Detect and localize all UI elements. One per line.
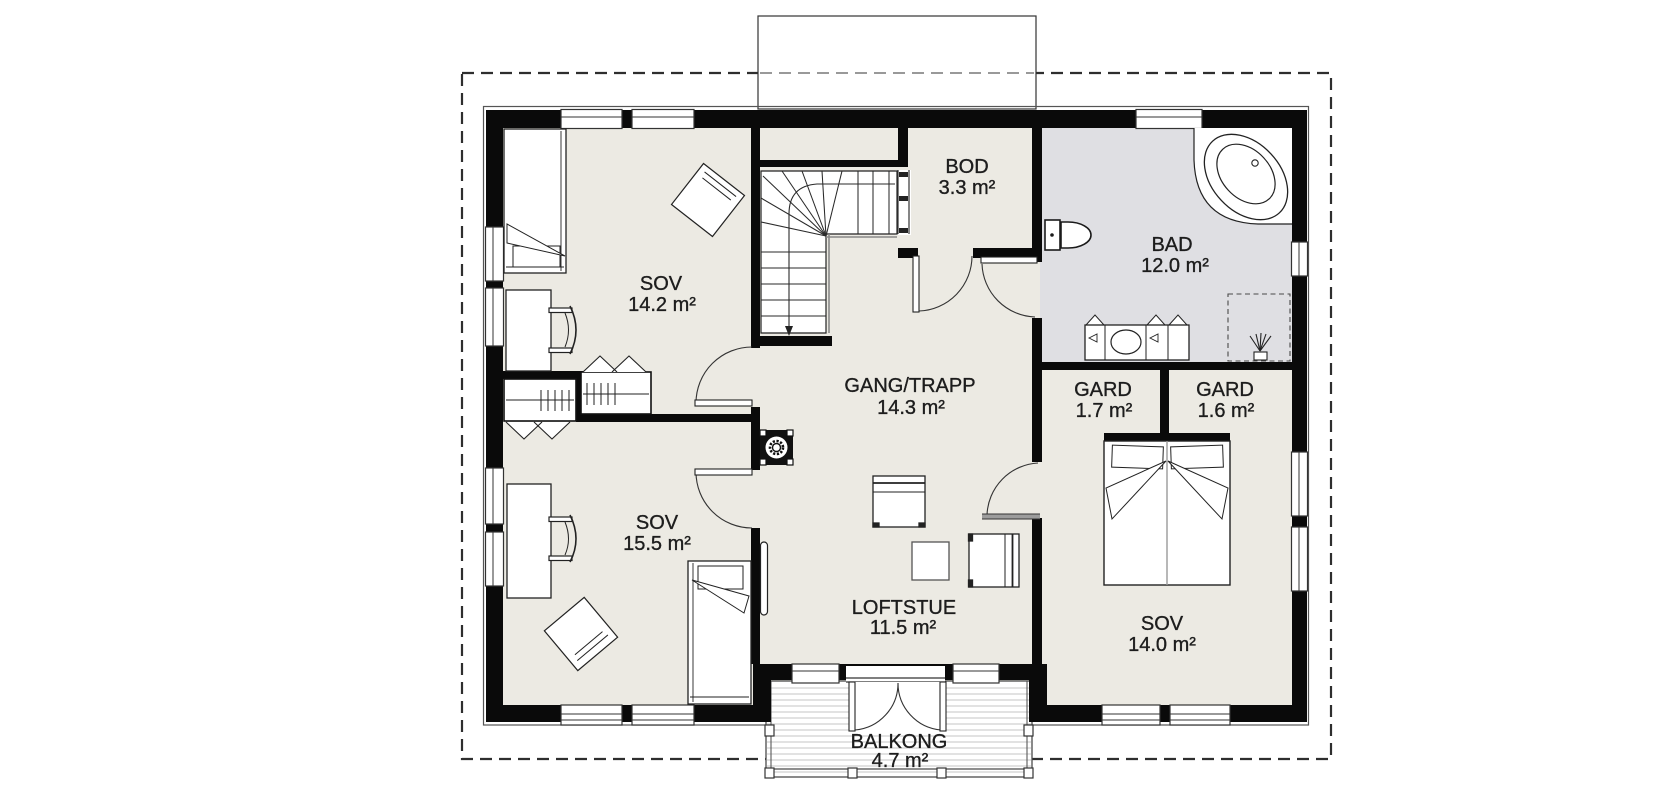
svg-text:LOFTSTUE: LOFTSTUE (852, 597, 956, 619)
svg-text:BOD: BOD (945, 156, 988, 178)
svg-text:1.6 m²: 1.6 m² (1198, 400, 1255, 422)
svg-text:14.2 m²: 14.2 m² (628, 294, 696, 316)
svg-text:4.7 m²: 4.7 m² (872, 750, 929, 772)
svg-text:GARD: GARD (1196, 379, 1254, 401)
svg-text:GANG/TRAPP: GANG/TRAPP (844, 375, 975, 397)
svg-text:3.3 m²: 3.3 m² (939, 177, 996, 199)
svg-text:15.5 m²: 15.5 m² (623, 533, 691, 555)
svg-text:14.0 m²: 14.0 m² (1128, 634, 1196, 656)
svg-text:14.3 m²: 14.3 m² (877, 397, 945, 419)
svg-text:1.7 m²: 1.7 m² (1076, 400, 1133, 422)
svg-text:SOV: SOV (1141, 613, 1184, 635)
svg-text:12.0 m²: 12.0 m² (1141, 255, 1209, 277)
svg-text:SOV: SOV (640, 273, 683, 295)
svg-text:GARD: GARD (1074, 379, 1132, 401)
svg-text:BAD: BAD (1151, 234, 1192, 256)
svg-text:11.5 m²: 11.5 m² (870, 617, 937, 639)
svg-text:SOV: SOV (636, 512, 679, 534)
